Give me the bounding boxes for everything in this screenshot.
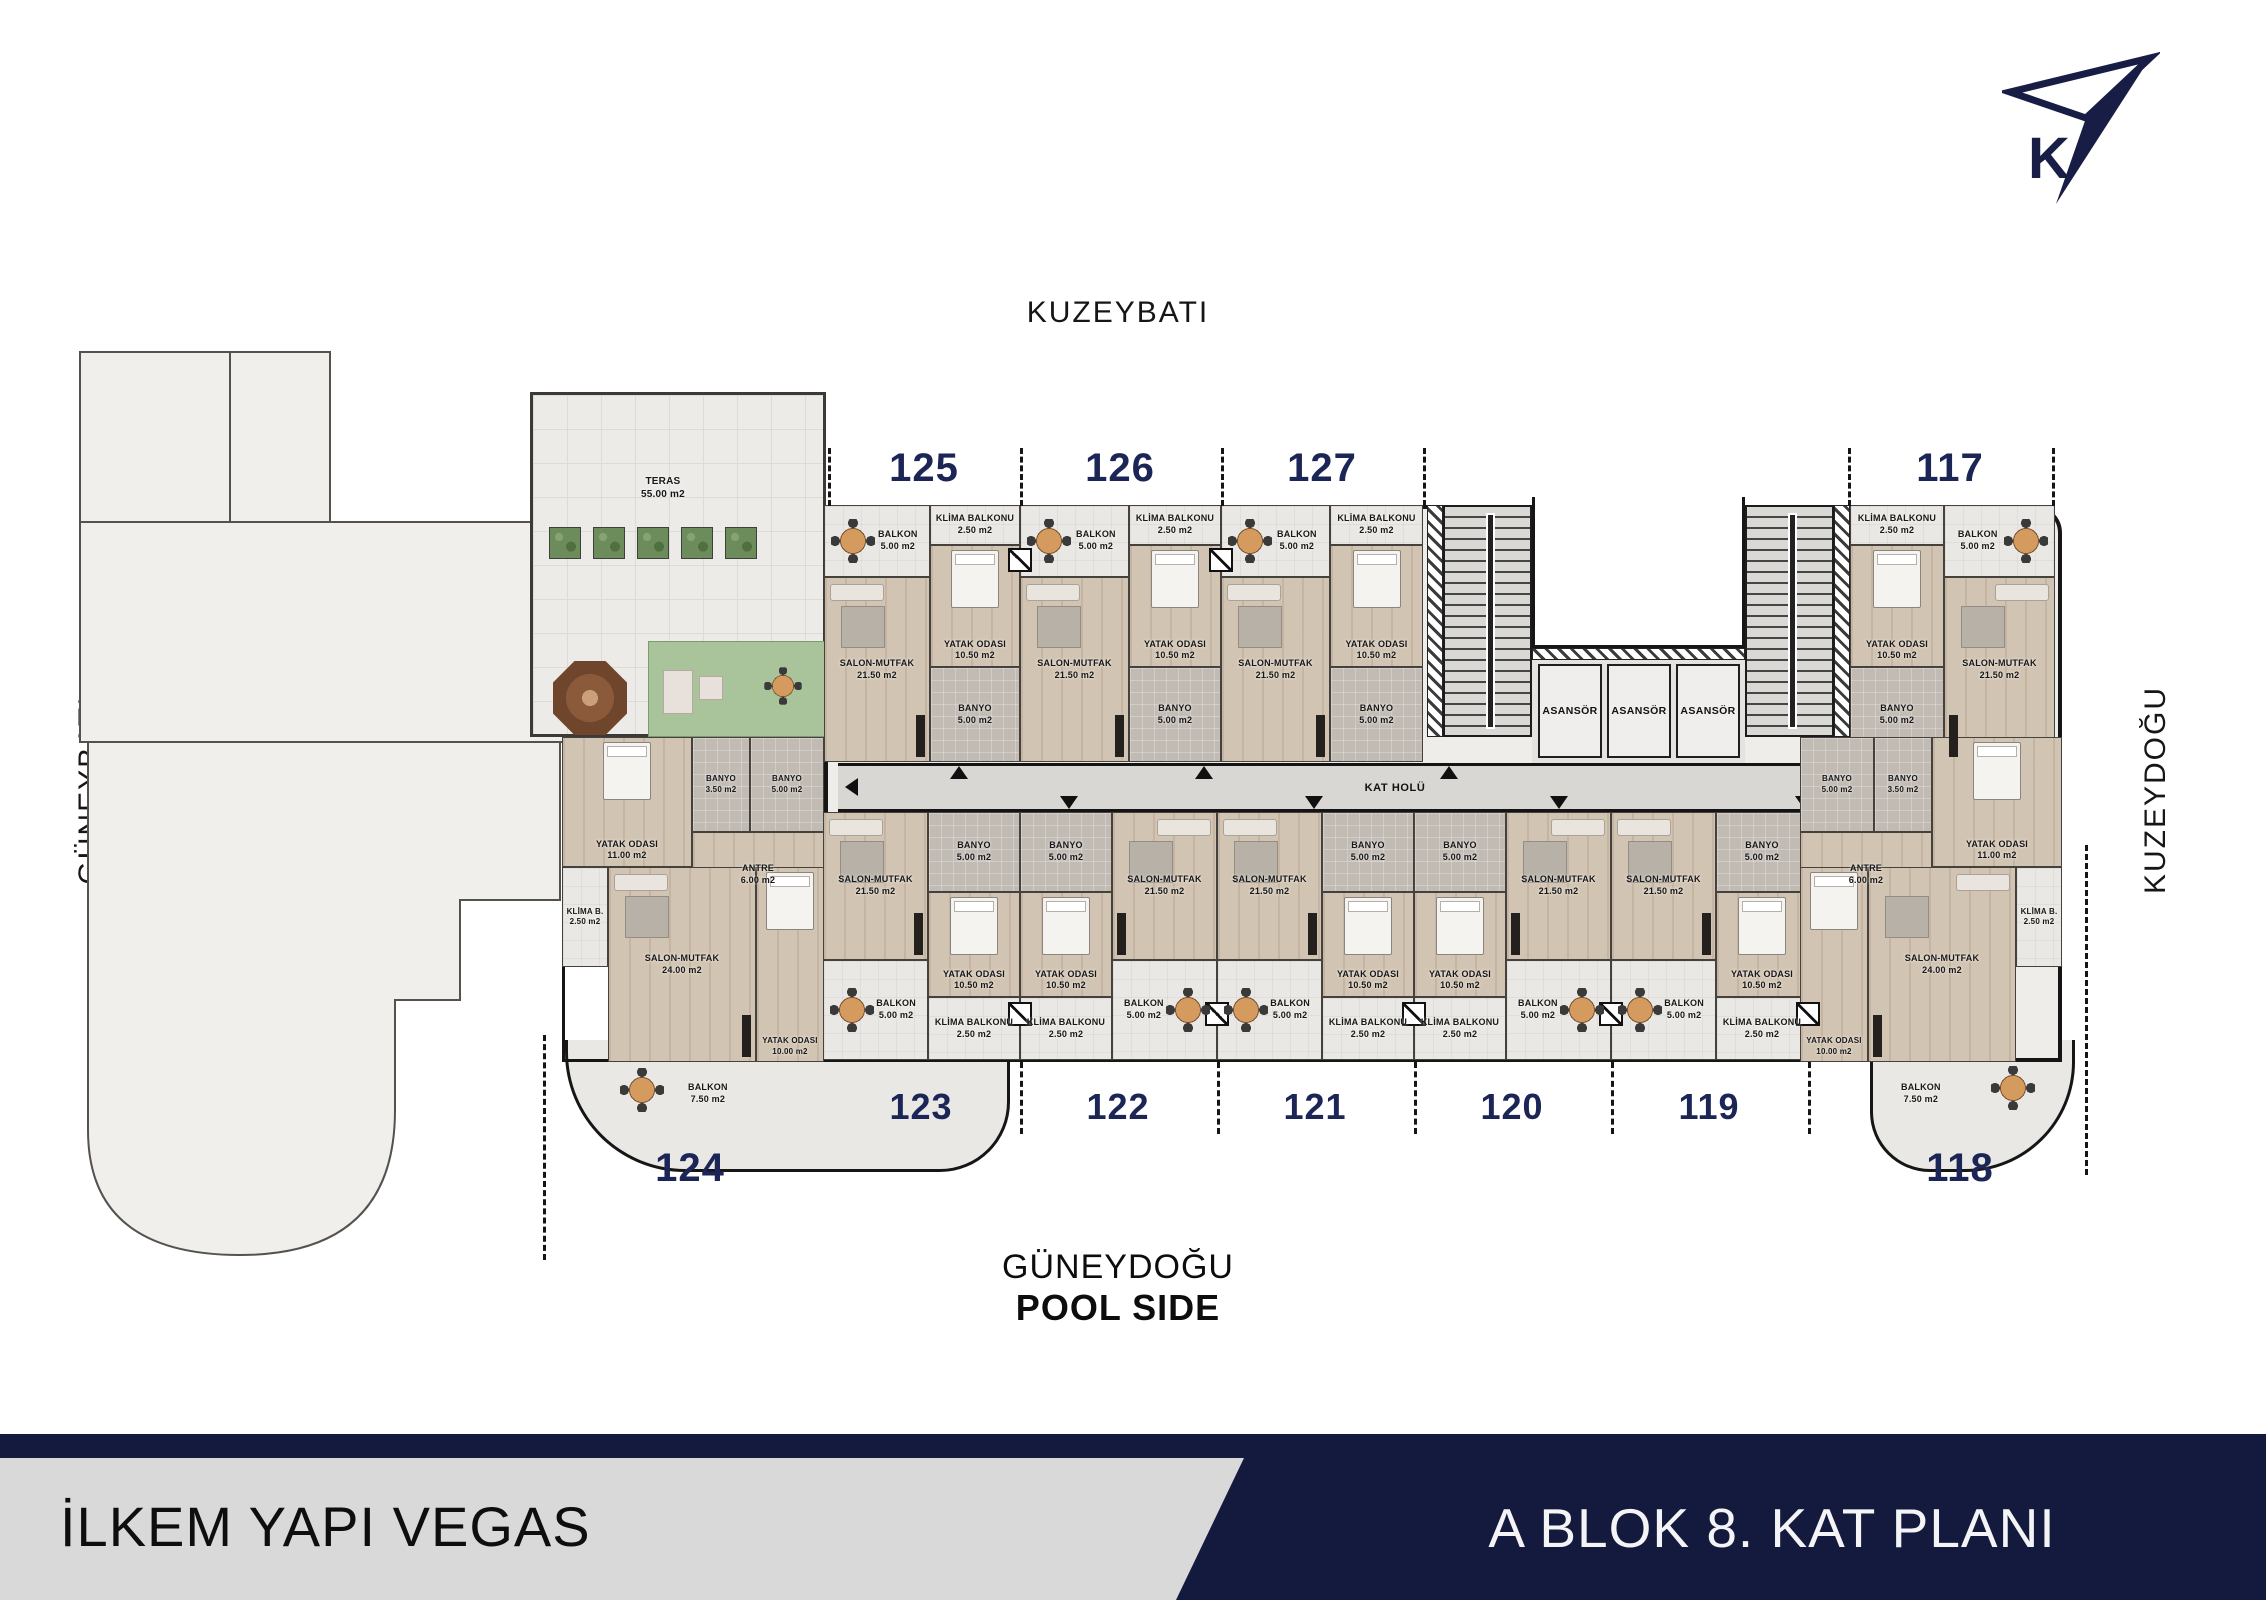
room-area: 5.00 m2	[957, 852, 991, 864]
room-yatak: YATAK ODASI10.50 m2	[1330, 545, 1423, 667]
room-name: YATAK ODASI	[1021, 969, 1111, 981]
room-area: 2.50 m2	[1421, 1029, 1499, 1041]
room-area: 21.50 m2	[1626, 886, 1700, 898]
staircase-left	[1443, 505, 1532, 737]
room-klima-b: KLİMA B.2.50 m2	[2016, 867, 2062, 967]
planter-icon	[637, 527, 669, 559]
unit-boundary-dash	[1217, 1062, 1220, 1134]
sofa-icon	[830, 584, 884, 601]
room-area: 5.00 m2	[1049, 852, 1083, 864]
room-balkon: BALKON5.00 m2	[1217, 960, 1322, 1060]
rug-icon	[1238, 606, 1282, 648]
room-klima: KLİMA BALKONU2.50 m2	[1414, 997, 1506, 1060]
room-name: SALON-MUTFAK	[1238, 658, 1312, 670]
unit-120: SALON-MUTFAK21.50 m2BANYO5.00 m2YATAK OD…	[1414, 812, 1611, 1060]
unit-124: YATAK ODASI11.00 m2BANYO3.50 m2BANYO5.00…	[562, 737, 824, 1062]
room-area: 21.50 m2	[1521, 886, 1595, 898]
room-name: BALKON	[1656, 998, 1713, 1010]
room-banyo: BANYO5.00 m2	[1322, 812, 1414, 892]
unit-boundary-dash	[1808, 1062, 1811, 1134]
kitchen-counter-icon	[1115, 715, 1124, 757]
room-area: 5.00 m2	[1510, 1010, 1567, 1022]
room-name: YATAK ODASI	[1933, 839, 2061, 851]
terrace: TERAS 55.00 m2	[530, 392, 826, 737]
terrace-label: TERAS 55.00 m2	[641, 475, 685, 501]
room-area: 2.50 m2	[567, 917, 604, 927]
direction-bottom-tr: GÜNEYDOĞU	[1002, 1248, 1234, 1287]
stair-wall-hatch	[1834, 505, 1850, 737]
room-area: 10.50 m2	[1331, 650, 1422, 662]
room-salon: SALON-MUTFAK21.50 m2	[1112, 812, 1217, 960]
unit-number-121: 121	[1283, 1086, 1346, 1128]
room-name: BALKON	[1116, 998, 1173, 1010]
bed-icon	[1353, 550, 1401, 608]
room-name: BALKON	[1948, 529, 2008, 541]
room-name: BANYO	[1158, 703, 1192, 715]
sofa-icon	[1995, 584, 2049, 601]
room-area: 5.00 m2	[958, 715, 992, 727]
room-name: SALON-MUTFAK	[1521, 874, 1595, 886]
room-area: 5.00 m2	[1822, 785, 1853, 795]
balcony-table-icon	[1027, 519, 1071, 563]
room-yatak2: YATAK ODASI10.00 m2	[1800, 867, 1868, 1062]
room-area: 10.50 m2	[1021, 980, 1111, 992]
room-name: SALON-MUTFAK	[1626, 874, 1700, 886]
unit-boundary-dash	[1020, 448, 1023, 506]
room-salon: SALON-MUTFAK21.50 m2	[1611, 812, 1716, 960]
kitchen-counter-icon	[1316, 715, 1325, 757]
stair-wall-hatch	[1427, 505, 1443, 737]
room-area: 21.50 m2	[1037, 670, 1111, 682]
room-banyo: BANYO5.00 m2	[930, 667, 1020, 762]
kitchen-counter-icon	[1702, 913, 1711, 955]
rug-icon	[841, 606, 885, 648]
room-area: 10.00 m2	[1801, 1047, 1867, 1057]
unit-boundary-dash	[1221, 448, 1224, 506]
staircase-right	[1745, 505, 1834, 737]
room-salon: SALON-MUTFAK21.50 m2	[1506, 812, 1611, 960]
balcony-table-icon	[1166, 988, 1210, 1032]
unit-number-117: 117	[1916, 446, 1984, 491]
room-name: BANYO	[1822, 774, 1853, 784]
room-name: SALON-MUTFAK	[1232, 874, 1306, 886]
room-area: 10.50 m2	[1130, 650, 1220, 662]
elevator-3: ASANSÖR	[1676, 664, 1740, 758]
room-area: 21.50 m2	[1127, 886, 1201, 898]
room-name: KLİMA BALKONU	[1136, 513, 1214, 525]
room-yatak1: YATAK ODASI11.00 m2	[562, 737, 692, 867]
room-name: SALON-MUTFAK	[645, 953, 719, 965]
balcony-table-icon	[1991, 1066, 2035, 1110]
room-name: KLİMA B.	[2021, 907, 2058, 917]
kitchen-counter-icon	[1308, 913, 1317, 955]
room-klima: KLİMA BALKONU2.50 m2	[1716, 997, 1808, 1060]
project-title: İLKEM YAPI VEGAS	[60, 1494, 591, 1559]
room-klima: KLİMA BALKONU2.50 m2	[928, 997, 1020, 1060]
unit-122: SALON-MUTFAK21.50 m2BANYO5.00 m2YATAK OD…	[1020, 812, 1217, 1060]
sofa-icon	[1617, 819, 1671, 836]
room-salon: SALON-MUTFAK21.50 m2	[824, 577, 930, 762]
room-area: 24.00 m2	[645, 965, 719, 977]
room-name: KLİMA BALKONU	[1858, 513, 1936, 525]
building-recess	[1532, 497, 1745, 648]
rug-icon	[1961, 606, 2005, 648]
room-banyo-small: BANYO3.50 m2	[692, 737, 750, 832]
room-name: SALON-MUTFAK	[838, 874, 912, 886]
roof-outline	[60, 330, 600, 1270]
room-name: BANYO	[1359, 703, 1393, 715]
corridor-arrow-icon	[845, 778, 858, 796]
room-name: SALON-MUTFAK	[1962, 658, 2036, 670]
room-yatak: YATAK ODASI10.50 m2	[1716, 892, 1808, 997]
room-salon: SALON-MUTFAK21.50 m2	[1221, 577, 1330, 762]
room-name: BALKON	[1901, 1082, 1941, 1094]
unit-125: BALKON5.00 m2KLİMA BALKONU2.50 m2YATAK O…	[824, 505, 1020, 762]
room-area: 10.50 m2	[1717, 980, 1807, 992]
room-banyo: BANYO5.00 m2	[1129, 667, 1221, 762]
sofa-icon	[1956, 874, 2010, 891]
room-area: 6.00 m2	[1849, 875, 1883, 887]
room-area: 21.50 m2	[840, 670, 914, 682]
plan-title: A BLOK 8. KAT PLANI	[1488, 1496, 2055, 1560]
unit-119: SALON-MUTFAK21.50 m2BANYO5.00 m2YATAK OD…	[1611, 812, 1808, 1060]
room-area: 5.00 m2	[1880, 715, 1914, 727]
room-area: 2.50 m2	[935, 1029, 1013, 1041]
rug-icon	[1885, 896, 1929, 938]
room-name: BANYO	[1880, 703, 1914, 715]
terrace-area: 55.00 m2	[641, 488, 685, 501]
room-name: YATAK ODASI	[563, 839, 691, 851]
room-klima: KLİMA BALKONU2.50 m2	[1129, 505, 1221, 545]
kitchen-counter-icon	[1949, 715, 1958, 757]
unit-number-118: 118	[1926, 1146, 1994, 1191]
room-klima: KLİMA BALKONU2.50 m2	[1330, 505, 1423, 545]
room-area: 7.50 m2	[688, 1094, 728, 1106]
room-area: 2.50 m2	[1136, 525, 1214, 537]
unit-number-127: 127	[1287, 446, 1357, 491]
corridor-arrow-icon	[1060, 796, 1078, 809]
room-yatak: YATAK ODASI10.50 m2	[930, 545, 1020, 667]
room-klima: KLİMA BALKONU2.50 m2	[1322, 997, 1414, 1060]
room-name: BANYO	[1745, 840, 1779, 852]
room-name: SALON-MUTFAK	[1037, 658, 1111, 670]
room-balkon: BALKON5.00 m2	[824, 505, 930, 577]
corridor-label: KAT HOLÜ	[1365, 782, 1426, 794]
room-area: 2.50 m2	[936, 525, 1014, 537]
direction-bottom-en: POOL SIDE	[1002, 1287, 1234, 1329]
room-name: SALON-MUTFAK	[840, 658, 914, 670]
balcony-table-icon	[1560, 988, 1604, 1032]
bed-icon	[1344, 897, 1392, 955]
unit-121: SALON-MUTFAK21.50 m2BANYO5.00 m2YATAK OD…	[1217, 812, 1414, 1060]
room-balkon: BALKON5.00 m2	[823, 960, 928, 1060]
sofa-icon	[829, 819, 883, 836]
bed-icon	[603, 742, 651, 800]
room-area: 5.00 m2	[1443, 852, 1477, 864]
room-area: 5.00 m2	[1262, 1010, 1319, 1022]
room-banyo: BANYO5.00 m2	[1020, 812, 1112, 892]
room-klima: KLİMA BALKONU2.50 m2	[1020, 997, 1112, 1060]
room-area: 10.00 m2	[757, 1047, 823, 1057]
room-name: BALKON	[1066, 529, 1125, 541]
unit-boundary-dash	[543, 1035, 546, 1260]
room-area: 2.50 m2	[2021, 917, 2058, 927]
unit-117: BALKON5.00 m2KLİMA BALKONU2.50 m2YATAK O…	[1850, 505, 2055, 762]
unit-118: YATAK ODASI11.00 m2BANYO3.50 m2BANYO5.00…	[1800, 737, 2062, 1062]
kitchen-counter-icon	[742, 1015, 751, 1057]
room-area: 5.00 m2	[772, 785, 803, 795]
unit-number-125: 125	[889, 446, 959, 491]
room-name: ANTRE	[741, 863, 775, 875]
room-area: 5.00 m2	[1948, 541, 2008, 553]
room-salon: SALON-MUTFAK21.50 m2	[823, 812, 928, 960]
unit-127: BALKON5.00 m2KLİMA BALKONU2.50 m2YATAK O…	[1221, 505, 1423, 762]
room-name: KLİMA B.	[567, 907, 604, 917]
room-area: 10.50 m2	[929, 980, 1019, 992]
planter-icon	[681, 527, 713, 559]
room-name: YATAK ODASI	[1323, 969, 1413, 981]
terrace-name: TERAS	[641, 475, 685, 488]
room-area: 2.50 m2	[1337, 525, 1415, 537]
room-balkon: BALKON5.00 m2	[1221, 505, 1330, 577]
room-name: YATAK ODASI	[1130, 639, 1220, 651]
room-name: BALKON	[688, 1082, 728, 1094]
room-area: 10.50 m2	[1851, 650, 1943, 662]
room-name: KLİMA BALKONU	[1337, 513, 1415, 525]
room-name: YATAK ODASI	[931, 639, 1019, 651]
room-area: 11.00 m2	[563, 850, 691, 862]
room-yatak: YATAK ODASI10.50 m2	[928, 892, 1020, 997]
room-salon: SALON-MUTFAK24.00 m2	[608, 867, 756, 1062]
room-area: 5.00 m2	[868, 1010, 925, 1022]
room-banyo: BANYO5.00 m2	[1716, 812, 1808, 892]
room-balkon: BALKON5.00 m2	[1506, 960, 1611, 1060]
elevator-1: ASANSÖR	[1538, 664, 1602, 758]
room-yatak: YATAK ODASI10.50 m2	[1850, 545, 1944, 667]
direction-top: KUZEYBATI	[1027, 296, 1209, 330]
room-name: YATAK ODASI	[1717, 969, 1807, 981]
room-area: 2.50 m2	[1329, 1029, 1407, 1041]
room-name: SALON-MUTFAK	[1905, 953, 1979, 965]
room-salon: SALON-MUTFAK24.00 m2	[1868, 867, 2016, 1062]
room-area: 3.50 m2	[706, 785, 737, 795]
unit-number-123: 123	[889, 1086, 952, 1128]
room-name: KLİMA BALKONU	[1027, 1017, 1105, 1029]
corridor-arrow-icon	[1550, 796, 1568, 809]
unit-number-126: 126	[1085, 446, 1155, 491]
unit-boundary-dash	[2085, 845, 2088, 1175]
balcony-table-icon	[620, 1068, 664, 1112]
room-banyo-small: BANYO3.50 m2	[1874, 737, 1932, 832]
room-banyo: BANYO5.00 m2	[1330, 667, 1423, 762]
planter-icon	[549, 527, 581, 559]
room-area: 10.50 m2	[931, 650, 1019, 662]
room-name: YATAK ODASI	[1415, 969, 1505, 981]
room-name: BANYO	[1351, 840, 1385, 852]
room-area: 2.50 m2	[1858, 525, 1936, 537]
room-name: ANTRE	[1849, 863, 1883, 875]
room-klima: KLİMA BALKONU2.50 m2	[930, 505, 1020, 545]
room-balkon: BALKON5.00 m2	[1611, 960, 1716, 1060]
room-name: KLİMA BALKONU	[1723, 1017, 1801, 1029]
bed-icon	[1436, 897, 1484, 955]
unit-boundary-dash	[1848, 448, 1851, 506]
rug-icon	[625, 896, 669, 938]
room-area: 21.50 m2	[1238, 670, 1312, 682]
room-name: YATAK ODASI	[757, 1036, 823, 1046]
room-area: 6.00 m2	[741, 875, 775, 887]
room-name: BANYO	[1049, 840, 1083, 852]
room-yatak2: YATAK ODASI10.00 m2	[756, 867, 824, 1062]
room-area: 2.50 m2	[1027, 1029, 1105, 1041]
room-area: 21.50 m2	[838, 886, 912, 898]
room-area: 24.00 m2	[1905, 965, 1979, 977]
room-name: BALKON	[1510, 998, 1567, 1010]
room-yatak: YATAK ODASI10.50 m2	[1129, 545, 1221, 667]
room-area: 5.00 m2	[1267, 541, 1326, 553]
balcony-table-icon	[2004, 519, 2048, 563]
room-area: 5.00 m2	[1656, 1010, 1713, 1022]
room-name: BANYO	[1888, 774, 1919, 784]
bed-icon	[951, 550, 999, 608]
room-area: 3.50 m2	[1888, 785, 1919, 795]
unit-123: SALON-MUTFAK21.50 m2BANYO5.00 m2YATAK OD…	[823, 812, 1020, 1060]
planter-icon	[725, 527, 757, 559]
unit-number-122: 122	[1086, 1086, 1149, 1128]
unit-number-124: 124	[655, 1146, 725, 1191]
room-name: BANYO	[958, 703, 992, 715]
sofa-icon	[1223, 819, 1277, 836]
room-area: 5.00 m2	[1351, 852, 1385, 864]
room-name: BANYO	[772, 774, 803, 784]
room-name: BANYO	[706, 774, 737, 784]
elevator-2: ASANSÖR	[1607, 664, 1671, 758]
room-name: YATAK ODASI	[1801, 1036, 1867, 1046]
room-area: 10.50 m2	[1415, 980, 1505, 992]
room-area: 2.50 m2	[1723, 1029, 1801, 1041]
room-name: KLİMA BALKONU	[936, 513, 1014, 525]
unit-number-120: 120	[1480, 1086, 1543, 1128]
room-banyo: BANYO5.00 m2	[928, 812, 1020, 892]
room-area: 5.00 m2	[1158, 715, 1192, 727]
unit-boundary-dash	[1020, 1062, 1023, 1134]
room-name: SALON-MUTFAK	[1127, 874, 1201, 886]
corridor-arrow-icon	[1440, 766, 1458, 779]
kitchen-counter-icon	[1511, 913, 1520, 955]
room-salon: SALON-MUTFAK21.50 m2	[1217, 812, 1322, 960]
elevator-wall-hatch	[1532, 648, 1745, 660]
compass-letter: K	[2028, 126, 2070, 191]
room-klima-b: KLİMA B.2.50 m2	[562, 867, 608, 967]
unit-126: BALKON5.00 m2KLİMA BALKONU2.50 m2YATAK O…	[1020, 505, 1221, 762]
room-balkon: BALKON5.00 m2	[1112, 960, 1217, 1060]
kitchen-counter-icon	[914, 913, 923, 955]
balcony-table-icon	[1228, 519, 1272, 563]
direction-right: KUZEYDOĞU	[2139, 686, 2173, 894]
room-name: YATAK ODASI	[1331, 639, 1422, 651]
room-banyo: BANYO5.00 m2	[1800, 737, 1874, 832]
kitchen-counter-icon	[916, 715, 925, 757]
kitchen-counter-icon	[1873, 1015, 1882, 1057]
kitchen-counter-icon	[1117, 913, 1126, 955]
room-area: 11.00 m2	[1933, 850, 2061, 862]
room-balkon: BALKON5.00 m2	[1944, 505, 2055, 577]
rug-icon	[1037, 606, 1081, 648]
room-area: 5.00 m2	[1066, 541, 1125, 553]
room-name: YATAK ODASI	[1851, 639, 1943, 651]
room-klima: KLİMA BALKONU2.50 m2	[1850, 505, 1944, 545]
room-salon: SALON-MUTFAK21.50 m2	[1944, 577, 2055, 762]
room-name: BALKON	[868, 998, 925, 1010]
unit-boundary-dash	[1423, 448, 1426, 506]
gazebo-icon	[553, 661, 627, 735]
unit-boundary-dash	[2052, 448, 2055, 506]
garden-table-icon	[764, 667, 801, 704]
room-name: BALKON	[1262, 998, 1319, 1010]
floor-plan-sheet: K KUZEYBATI GÜNEYBATI KUZEYDOĞU GÜNEYDOĞ…	[0, 0, 2266, 1600]
bed-icon	[1042, 897, 1090, 955]
unit-number-119: 119	[1678, 1086, 1739, 1128]
unit-boundary-dash	[828, 448, 831, 506]
room-name: BANYO	[957, 840, 991, 852]
north-compass-icon: K	[2002, 52, 2160, 210]
corridor-arrow-icon	[1195, 766, 1213, 779]
room-salon: SALON-MUTFAK21.50 m2	[1020, 577, 1129, 762]
room-yatak: YATAK ODASI10.50 m2	[1322, 892, 1414, 997]
sofa-icon	[1026, 584, 1080, 601]
sofa-icon	[614, 874, 668, 891]
room-name: YATAK ODASI	[929, 969, 1019, 981]
room-area: 5.00 m2	[869, 541, 926, 553]
direction-bottom: GÜNEYDOĞU POOL SIDE	[1002, 1248, 1234, 1329]
room-area: 21.50 m2	[1232, 886, 1306, 898]
room-area: 5.00 m2	[1359, 715, 1393, 727]
unit-boundary-dash	[1414, 1062, 1417, 1134]
bed-icon	[1738, 897, 1786, 955]
bed-icon	[1973, 742, 2021, 800]
room-name: KLİMA BALKONU	[935, 1017, 1013, 1029]
corridor-arrow-icon	[950, 766, 968, 779]
room-banyo: BANYO5.00 m2	[1414, 812, 1506, 892]
room-name: BALKON	[869, 529, 926, 541]
room-area: 7.50 m2	[1901, 1094, 1941, 1106]
bed-icon	[950, 897, 998, 955]
room-name: KLİMA BALKONU	[1329, 1017, 1407, 1029]
bed-icon	[1151, 550, 1199, 608]
room-balkon: BALKON5.00 m2	[1020, 505, 1129, 577]
room-banyo: BANYO5.00 m2	[750, 737, 824, 832]
room-yatak: YATAK ODASI10.50 m2	[1020, 892, 1112, 997]
terrace-lawn	[648, 641, 826, 737]
room-name: BANYO	[1443, 840, 1477, 852]
room-area: 10.50 m2	[1323, 980, 1413, 992]
sofa-icon	[1227, 584, 1281, 601]
sofa-icon	[1157, 819, 1211, 836]
room-name: BALKON	[1267, 529, 1326, 541]
bed-icon	[1873, 550, 1921, 608]
room-yatak: YATAK ODASI10.50 m2	[1414, 892, 1506, 997]
room-area: 5.00 m2	[1116, 1010, 1173, 1022]
planter-icon	[593, 527, 625, 559]
room-area: 5.00 m2	[1745, 852, 1779, 864]
corridor-arrow-icon	[1305, 796, 1323, 809]
room-area: 21.50 m2	[1962, 670, 2036, 682]
room-name: KLİMA BALKONU	[1421, 1017, 1499, 1029]
sofa-icon	[1551, 819, 1605, 836]
unit-boundary-dash	[1611, 1062, 1614, 1134]
